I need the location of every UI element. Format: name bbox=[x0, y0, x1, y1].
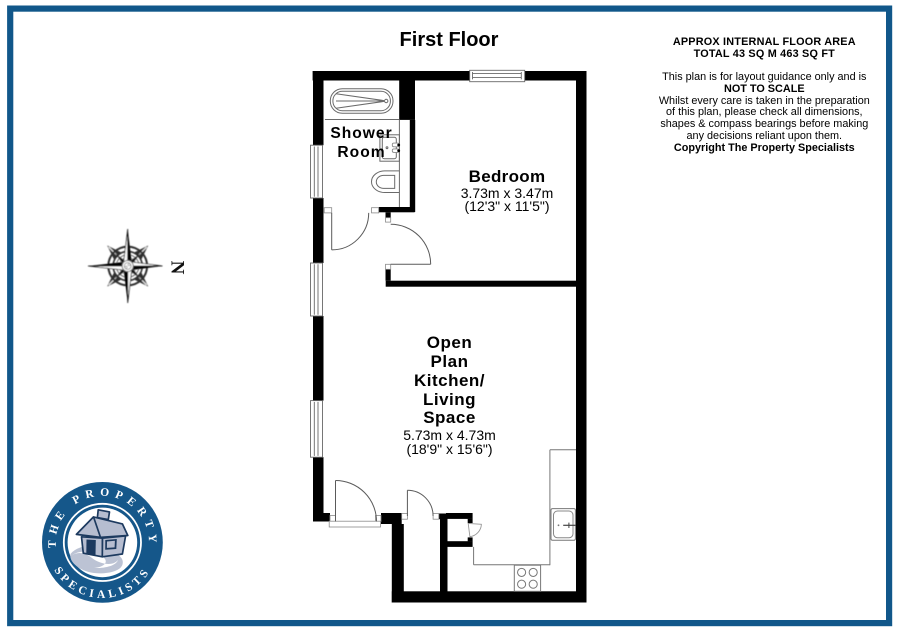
svg-text:N: N bbox=[166, 261, 187, 275]
